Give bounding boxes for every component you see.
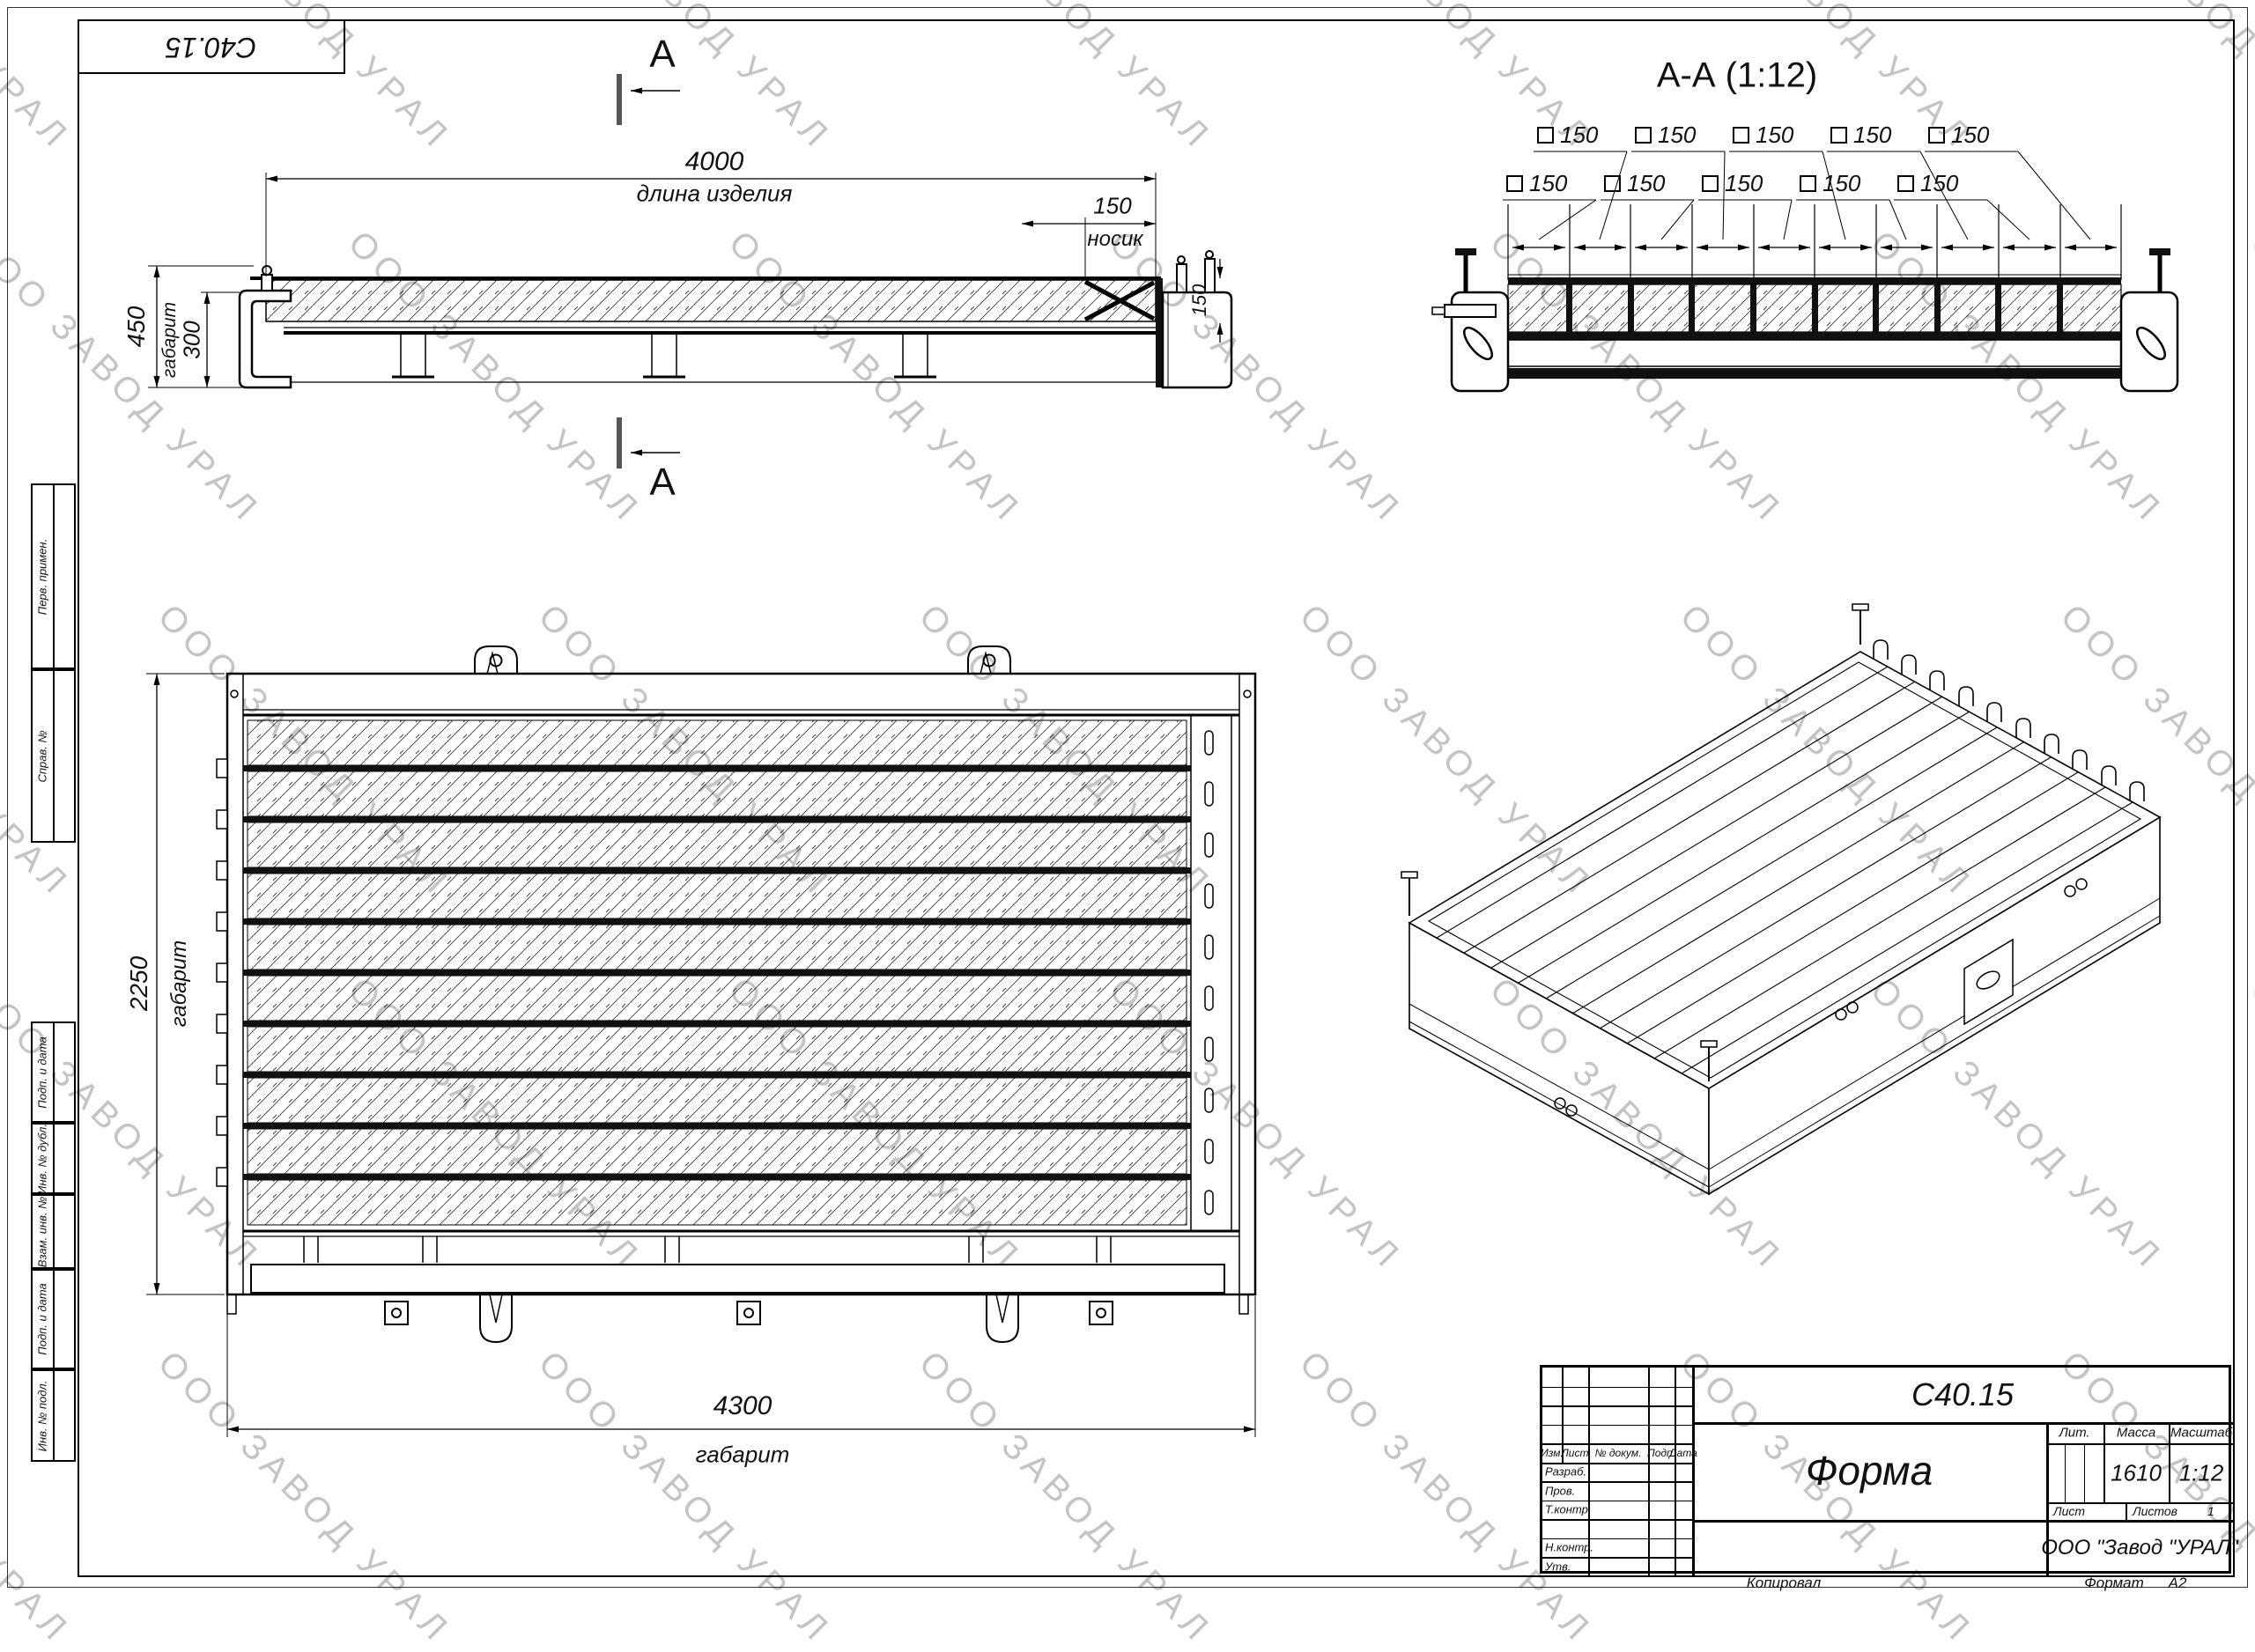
square-symbol-icon xyxy=(1537,127,1554,144)
tb-row-approved: Утв. xyxy=(1545,1560,1571,1574)
tb-part-title: Форма xyxy=(1806,1447,1933,1494)
dim-nose-label: носик xyxy=(1087,227,1142,252)
dim-plan-length: 4300 xyxy=(713,1391,773,1421)
dim-length-label: длина изделия xyxy=(637,181,793,208)
tb-header-date: Дата xyxy=(1669,1447,1697,1459)
footer-format-value: А2 xyxy=(2169,1575,2187,1592)
drawing-sheet: С40.15 Перв. примен. Справ. № Подп. и да… xyxy=(0,0,2255,1595)
cell-dim-label: 150 xyxy=(1537,122,1598,149)
footer-format-label: Формат xyxy=(2084,1575,2144,1592)
tb-header-izm: Изм. xyxy=(1541,1447,1564,1459)
dim-nose: 150 xyxy=(1093,193,1131,220)
tb-mass-value: 1610 xyxy=(2111,1460,2162,1487)
tb-doc-number: С40.15 xyxy=(1911,1376,2014,1413)
tb-row-tcontrol: Т.контр. xyxy=(1545,1503,1591,1516)
section-aa-title: А-А (1:12) xyxy=(1657,56,1817,96)
tb-sheets-value: 1 xyxy=(2207,1504,2214,1518)
tb-sheet-label: Лист xyxy=(2053,1504,2085,1518)
tb-header-doc: № докум. xyxy=(1595,1447,1642,1459)
tb-row-developed: Разраб. xyxy=(1545,1465,1586,1479)
dim-plan-length-label: габарит xyxy=(696,1442,790,1469)
tb-row-ncontrol: Н.контр. xyxy=(1545,1541,1593,1554)
dim-inner-height-label: габарит xyxy=(159,302,181,378)
cell-dim-label: 150 xyxy=(1800,170,1860,197)
square-symbol-icon xyxy=(1830,127,1847,144)
cell-dim-label: 150 xyxy=(1635,122,1696,149)
plan-view xyxy=(146,646,1255,1437)
isometric-view xyxy=(1401,604,2160,1194)
section-letter-top: А xyxy=(649,33,675,77)
tb-scale-label: Масштаб xyxy=(2170,1426,2232,1441)
dim-inner-height: 300 xyxy=(179,321,206,358)
footer-copied: Копировал xyxy=(1747,1575,1822,1592)
cell-dim-label: 150 xyxy=(1702,170,1763,197)
square-symbol-icon xyxy=(1506,175,1523,192)
cell-dim-label: 150 xyxy=(1928,122,1989,149)
cell-dim-label: 150 xyxy=(1830,122,1891,149)
tb-scale-value: 1:12 xyxy=(2179,1460,2224,1487)
cell-dim-label: 150 xyxy=(1506,170,1567,197)
cell-dim-label: 150 xyxy=(1604,170,1665,197)
tb-company: ООО "Завод "УРАЛ" xyxy=(2041,1536,2238,1560)
tb-lit-label: Лит. xyxy=(2059,1426,2089,1441)
tb-row-checked: Пров. xyxy=(1545,1485,1575,1498)
dim-product-height: 150 xyxy=(1188,284,1211,317)
cell-dim-label: 150 xyxy=(1897,170,1958,197)
tb-sheets-label: Листов xyxy=(2133,1504,2177,1518)
square-symbol-icon xyxy=(1800,175,1816,192)
tb-mass-label: Масса xyxy=(2117,1426,2155,1441)
square-symbol-icon xyxy=(1635,127,1652,144)
square-symbol-icon xyxy=(1928,127,1945,144)
title-block: С40.15 Форма Лит. Масса Масштаб 1610 1:1… xyxy=(1540,1365,2231,1574)
section-letter-bottom: А xyxy=(649,461,675,505)
square-symbol-icon xyxy=(1604,175,1621,192)
square-symbol-icon xyxy=(1897,175,1914,192)
dim-length: 4000 xyxy=(685,147,744,177)
dim-total-height: 450 xyxy=(122,306,151,348)
tb-header-list: Лист xyxy=(1562,1447,1589,1459)
square-symbol-icon xyxy=(1733,127,1749,144)
side-view xyxy=(148,74,1231,468)
dim-plan-width-label: габарит xyxy=(167,940,192,1027)
cell-dim-label: 150 xyxy=(1733,122,1793,149)
square-symbol-icon xyxy=(1702,175,1719,192)
dim-plan-width: 2250 xyxy=(125,956,153,1011)
